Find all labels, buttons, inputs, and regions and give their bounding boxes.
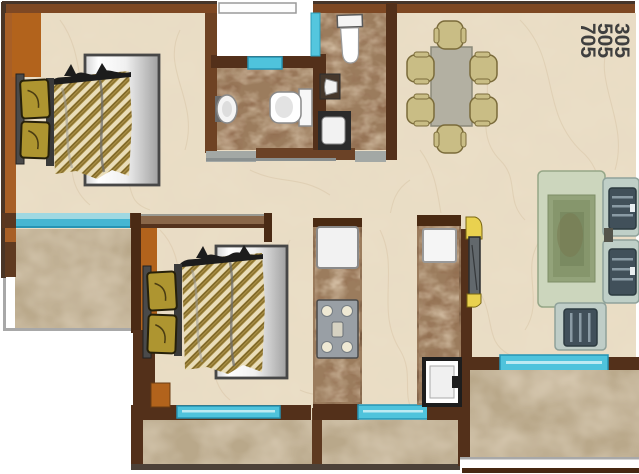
svg-text:705: 705 [576, 23, 599, 58]
